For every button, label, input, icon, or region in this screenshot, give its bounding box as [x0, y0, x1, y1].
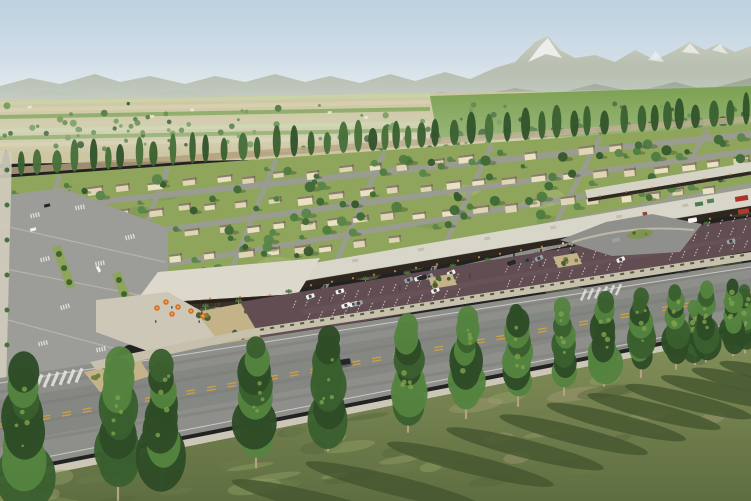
- poplar-tree: [90, 138, 97, 170]
- yard-tree: [568, 170, 576, 178]
- yard-tree: [314, 173, 320, 179]
- canopy-highlight: [729, 289, 735, 295]
- yard-tree: [574, 203, 581, 210]
- tree-canopy: [597, 291, 614, 314]
- yard-tree: [262, 242, 272, 252]
- yard-tree: [468, 159, 475, 166]
- tree-canopy: [246, 336, 265, 358]
- island-shrub: [565, 260, 568, 263]
- canopy-highlight: [560, 336, 563, 339]
- shop-light: [729, 173, 731, 175]
- house: [702, 185, 716, 194]
- poplar-tree: [467, 112, 476, 144]
- island-shrub: [632, 231, 635, 234]
- island-shrub: [438, 277, 442, 281]
- yard-tree: [137, 200, 141, 204]
- canopy-highlight: [460, 368, 466, 374]
- yard-tree: [173, 226, 179, 232]
- poplar-tree: [339, 122, 348, 153]
- tree-canopy: [457, 306, 478, 333]
- poplar-tree: [18, 151, 25, 175]
- canopy-highlight: [703, 316, 706, 319]
- poplar-tree: [354, 120, 362, 152]
- yard-tree: [339, 201, 346, 208]
- yard-tree: [615, 149, 623, 157]
- poplar-tree: [202, 134, 209, 162]
- island-shrub: [432, 283, 437, 288]
- tree-canopy: [633, 288, 648, 307]
- canopy-highlight: [677, 302, 680, 305]
- umbrella-top: [171, 313, 172, 314]
- palm-frond: [703, 224, 707, 225]
- canopy-highlight: [252, 406, 255, 409]
- canopy-highlight: [606, 318, 611, 323]
- yard-tree: [480, 155, 490, 165]
- yard-tree: [301, 208, 311, 218]
- shop-light: [599, 195, 601, 197]
- palm-frond: [403, 273, 407, 274]
- shop-light: [703, 178, 705, 180]
- scene-canvas: [0, 0, 751, 501]
- canopy-highlight: [468, 342, 471, 345]
- yard-tree: [349, 228, 357, 236]
- yard-tree: [447, 156, 453, 162]
- island-shrub: [93, 375, 99, 381]
- poplar-tree: [620, 105, 628, 133]
- yard-tree: [371, 160, 378, 167]
- palm-frond: [484, 260, 488, 261]
- street-tree: [5, 308, 10, 313]
- yard-tree: [228, 235, 234, 241]
- poplar-tree: [70, 139, 78, 171]
- canopy-highlight: [400, 382, 405, 387]
- yard-tree: [624, 154, 628, 158]
- storefront-light: [436, 263, 438, 265]
- yard-tree: [428, 159, 435, 166]
- palm-frond: [362, 279, 366, 280]
- yard-tree: [191, 257, 197, 263]
- island-shrub: [574, 258, 578, 262]
- canopy-highlight: [163, 377, 168, 382]
- island-shrub: [644, 232, 647, 235]
- yard-tree: [96, 191, 105, 200]
- yard-tree: [450, 205, 460, 215]
- canopy-highlight: [24, 420, 29, 425]
- street-tree: [5, 203, 10, 208]
- poplar-tree: [726, 100, 734, 126]
- canopy-highlight: [158, 390, 163, 395]
- canopy-highlight: [155, 433, 160, 438]
- canopy-highlight: [327, 378, 330, 381]
- poplar-tree: [431, 119, 439, 147]
- canopy-highlight: [729, 300, 735, 306]
- canopy-highlight: [330, 395, 334, 399]
- street-tree: [5, 238, 10, 243]
- canopy-highlight: [641, 339, 644, 342]
- poplar-tree: [552, 105, 561, 138]
- tree-canopy: [149, 349, 174, 383]
- poplar-tree: [392, 121, 400, 149]
- yard-tree: [304, 246, 314, 256]
- canopy-highlight: [515, 364, 519, 368]
- storefront-light: [331, 281, 333, 283]
- yard-tree: [432, 224, 438, 230]
- canopy-highlight: [319, 400, 323, 404]
- canopy-highlight: [728, 314, 733, 319]
- canopy-highlight: [22, 387, 27, 392]
- house: [624, 167, 637, 177]
- canopy-highlight: [671, 320, 676, 325]
- canopy-light: [269, 294, 271, 296]
- house: [235, 200, 248, 209]
- yard-tree: [719, 140, 726, 147]
- poplar-tree: [273, 125, 281, 157]
- poplar-tree: [583, 106, 591, 136]
- poplar-tree: [105, 147, 111, 170]
- yard-tree: [445, 221, 452, 228]
- poplar-tree: [600, 110, 609, 134]
- canopy-highlight: [639, 321, 644, 326]
- palm-frond: [202, 306, 206, 307]
- canopy-highlight: [115, 404, 118, 407]
- canopy-highlight: [111, 418, 115, 422]
- canopy-highlight: [728, 298, 731, 301]
- yard-tree: [253, 206, 259, 212]
- canopy-highlight: [20, 410, 25, 415]
- canopy-highlight: [601, 332, 606, 337]
- storefront-light: [373, 274, 375, 276]
- yard-tree: [419, 169, 427, 177]
- yard-tree: [548, 173, 556, 181]
- poplar-tree: [189, 132, 195, 164]
- yard-tree: [676, 153, 684, 161]
- canopy-highlight: [331, 358, 334, 361]
- poplar-tree: [521, 108, 530, 141]
- canopy-highlight: [514, 338, 518, 342]
- canopy-highlight: [15, 423, 19, 427]
- canopy-light: [209, 297, 211, 299]
- yard-tree: [525, 197, 533, 205]
- canopy-highlight: [408, 384, 413, 389]
- canopy-highlight: [746, 297, 750, 301]
- yard-tree: [152, 174, 163, 185]
- canopy-highlight: [561, 340, 566, 345]
- yard-tree: [81, 188, 87, 194]
- canopy-highlight: [559, 319, 562, 322]
- yard-tree: [596, 152, 603, 159]
- poplar-tree: [238, 133, 247, 160]
- umbrella-top: [177, 306, 178, 307]
- yard-tree: [356, 212, 365, 221]
- shop-light: [651, 186, 653, 188]
- yard-tree: [391, 202, 402, 213]
- yard-tree: [635, 141, 643, 149]
- poplar-tree: [417, 122, 426, 147]
- street-tree: [5, 273, 10, 278]
- canopy-highlight: [467, 329, 470, 332]
- yard-tree: [736, 154, 745, 163]
- yard-tree: [646, 194, 653, 201]
- yard-tree: [264, 167, 268, 171]
- canopy-highlight: [521, 365, 525, 369]
- yard-tree: [536, 210, 546, 220]
- canopy-highlight: [261, 397, 265, 401]
- yard-tree: [283, 167, 292, 176]
- storefront-light: [541, 246, 543, 248]
- storefront-light: [310, 284, 312, 286]
- yard-tree: [337, 216, 347, 226]
- canopy-light: [239, 296, 241, 298]
- poplar-tree: [33, 149, 41, 174]
- street-tree: [5, 168, 10, 173]
- yard-tree: [454, 193, 462, 201]
- yard-tree: [497, 150, 504, 157]
- yard-tree: [460, 213, 467, 220]
- house: [386, 185, 399, 194]
- aerial-render-stage: [0, 0, 751, 501]
- yard-tree: [209, 196, 216, 203]
- tree-canopy: [318, 325, 340, 351]
- street-tree: [5, 343, 10, 348]
- yard-tree: [190, 207, 198, 215]
- yard-tree: [684, 149, 689, 154]
- yard-tree: [322, 225, 331, 234]
- canopy-highlight: [322, 397, 325, 400]
- house: [524, 151, 538, 161]
- yard-tree: [138, 206, 146, 214]
- poplar-tree: [52, 150, 61, 173]
- poplar-tree: [663, 101, 672, 130]
- tree-canopy: [397, 313, 418, 341]
- yard-tree: [380, 168, 388, 176]
- yard-tree: [370, 191, 376, 197]
- yard-tree: [661, 145, 671, 155]
- poplar-tree: [308, 131, 315, 155]
- storefront-light: [730, 214, 732, 216]
- storefront-light: [352, 277, 354, 279]
- pedestrian: [155, 320, 156, 322]
- yard-tree: [351, 200, 359, 208]
- canopy-highlight: [745, 303, 749, 307]
- house: [204, 251, 217, 260]
- yard-tree: [558, 152, 568, 162]
- yard-tree: [244, 235, 251, 242]
- poplar-tree: [405, 125, 412, 148]
- storefront-light: [415, 267, 417, 269]
- house: [353, 238, 367, 248]
- canopy-highlight: [558, 311, 564, 317]
- poplar-tree: [638, 105, 647, 132]
- yard-tree: [544, 182, 553, 191]
- canopy-highlight: [563, 351, 566, 354]
- storefront-light: [457, 260, 459, 262]
- canopy-highlight: [401, 370, 407, 376]
- canopy-highlight: [167, 375, 170, 378]
- canopy-highlight: [598, 320, 602, 324]
- palm-frond: [449, 266, 453, 267]
- yard-tree: [490, 196, 500, 206]
- shop-light: [625, 191, 627, 193]
- tree-canopy: [509, 304, 522, 322]
- canopy-highlight: [119, 410, 123, 414]
- island-shrub: [447, 277, 451, 281]
- canopy-highlight: [642, 326, 647, 331]
- yard-tree: [521, 164, 525, 168]
- yard-tree: [290, 213, 298, 221]
- poplar-tree: [675, 98, 684, 129]
- umbrella-top: [156, 307, 157, 308]
- poplar-tree: [691, 105, 700, 129]
- canopy-highlight: [672, 310, 676, 314]
- umbrella-top: [190, 310, 191, 311]
- poplar-tree: [149, 141, 157, 166]
- yard-tree: [651, 152, 661, 162]
- pedestrian: [199, 320, 200, 322]
- yard-tree: [274, 196, 280, 202]
- storefront-light: [499, 253, 501, 255]
- yard-tree: [224, 226, 233, 235]
- poplar-tree: [254, 137, 261, 159]
- poplar-tree: [221, 138, 228, 162]
- house: [505, 203, 519, 214]
- poplar-tree: [538, 111, 545, 139]
- canopy-highlight: [115, 395, 120, 400]
- poplar-tree: [381, 126, 388, 151]
- umbrella-top: [165, 301, 166, 302]
- pedestrian: [201, 311, 202, 313]
- car-glass: [341, 360, 346, 364]
- canopy-highlight: [257, 381, 261, 385]
- canopy-highlight: [644, 309, 647, 312]
- yard-tree: [302, 218, 309, 225]
- canopy-highlight: [468, 336, 473, 341]
- yard-tree: [467, 203, 473, 209]
- poplar-tree: [743, 92, 750, 125]
- shop-light: [677, 182, 679, 184]
- poplar-tree: [709, 100, 719, 127]
- canopy-highlight: [605, 346, 608, 349]
- canopy-highlight: [605, 337, 610, 342]
- storefront-light: [709, 218, 711, 220]
- poplar-tree: [570, 110, 578, 136]
- poplar-tree: [485, 114, 494, 143]
- yard-tree: [242, 244, 248, 250]
- canopy-highlight: [514, 326, 518, 330]
- canopy-highlight: [164, 407, 170, 413]
- canopy-highlight: [705, 326, 708, 329]
- yard-tree: [299, 235, 304, 240]
- tree-canopy: [668, 284, 681, 301]
- storefront-light: [478, 256, 480, 258]
- canopy-highlight: [21, 444, 24, 447]
- tree-canopy: [8, 351, 39, 393]
- storefront-light: [520, 249, 522, 251]
- canopy-highlight: [703, 307, 706, 310]
- canopy-highlight: [635, 311, 638, 314]
- yard-tree: [589, 180, 595, 186]
- canopy-highlight: [515, 354, 521, 360]
- canopy-highlight: [258, 391, 262, 395]
- canopy-highlight: [702, 320, 706, 324]
- yard-tree: [486, 173, 493, 180]
- poplar-tree: [290, 125, 298, 156]
- poplar-tree: [651, 105, 659, 131]
- poplar-tree: [136, 137, 144, 167]
- island-shrub: [561, 261, 565, 265]
- poplar-tree: [450, 120, 459, 146]
- house: [273, 221, 286, 230]
- house: [169, 253, 183, 263]
- palm-frond: [235, 301, 239, 302]
- yard-tree: [399, 155, 408, 164]
- pedestrian: [171, 306, 172, 308]
- umbrella-top: [202, 315, 203, 316]
- poplar-tree: [116, 144, 124, 169]
- yard-tree: [312, 179, 317, 184]
- storefront-light: [562, 242, 564, 244]
- yard-tree: [737, 133, 746, 142]
- yard-tree: [233, 185, 241, 193]
- palm-frond: [285, 292, 289, 293]
- canopy-highlight: [255, 409, 259, 413]
- poplar-tree: [368, 128, 377, 151]
- yard-tree: [64, 183, 69, 188]
- poplar-tree: [324, 132, 331, 154]
- yard-tree: [316, 198, 324, 206]
- poplar-tree: [503, 112, 511, 142]
- tree-canopy: [700, 280, 714, 298]
- poplar-tree: [170, 133, 177, 165]
- canopy-highlight: [111, 432, 115, 436]
- yard-tree: [269, 229, 276, 236]
- pedestrian: [199, 306, 200, 308]
- house: [380, 210, 395, 220]
- canopy-highlight: [408, 380, 412, 384]
- yard-tree: [537, 192, 548, 203]
- yard-tree: [317, 182, 326, 191]
- yard-tree: [294, 253, 299, 258]
- canopy-highlight: [741, 310, 746, 315]
- tree-canopy: [105, 346, 134, 382]
- storefront-light: [394, 270, 396, 272]
